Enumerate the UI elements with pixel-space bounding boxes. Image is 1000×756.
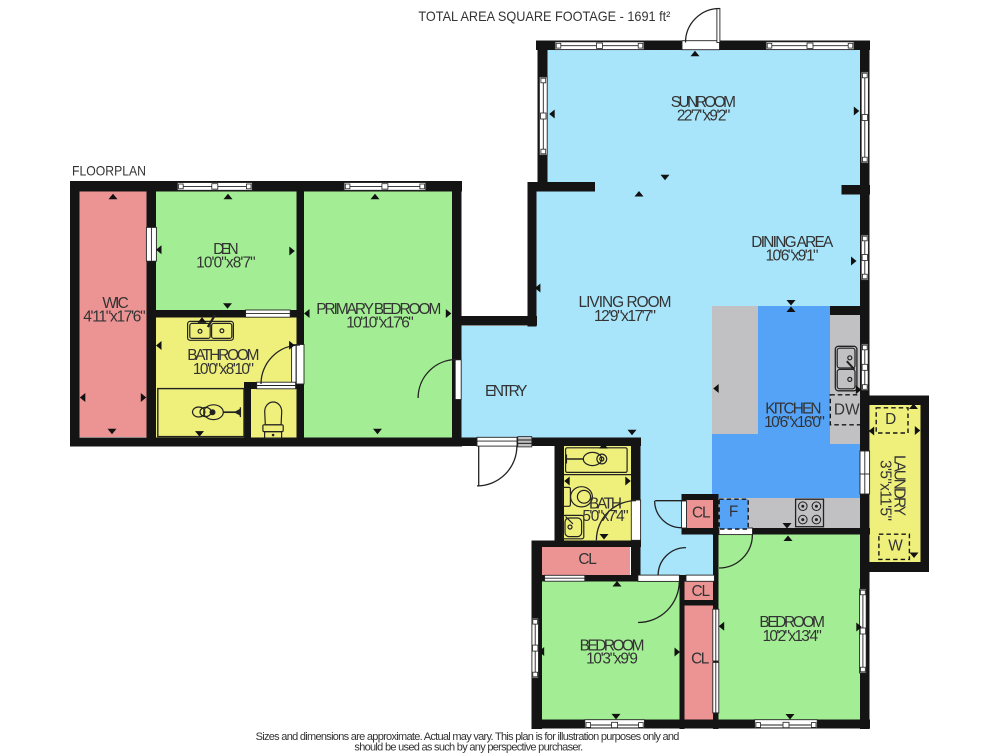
svg-text:22'7"x9'2": 22'7"x9'2" xyxy=(677,107,731,124)
svg-text:3'5"x11'5": 3'5"x11'5" xyxy=(876,460,893,521)
svg-text:10'6"x16'0": 10'6"x16'0" xyxy=(764,414,825,431)
svg-text:4'11"x17'6": 4'11"x17'6" xyxy=(83,308,145,325)
svg-text:CL: CL xyxy=(691,651,710,668)
svg-text:10'0"x8'7": 10'0"x8'7" xyxy=(196,254,256,271)
svg-text:F: F xyxy=(729,503,738,520)
svg-text:10'3"x9'9: 10'3"x9'9 xyxy=(586,651,638,668)
svg-text:W: W xyxy=(888,538,903,555)
svg-text:10'2"x13'4": 10'2"x13'4" xyxy=(763,628,822,645)
svg-text:10'10"x17'6": 10'10"x17'6" xyxy=(346,314,414,331)
svg-text:DW: DW xyxy=(834,401,860,418)
svg-text:10'6"x9'1": 10'6"x9'1" xyxy=(766,247,819,264)
svg-text:CL: CL xyxy=(578,551,597,568)
svg-text:D: D xyxy=(885,411,896,428)
svg-text:5'0"x7'4": 5'0"x7'4" xyxy=(582,508,628,525)
svg-text:10'0"x8'10": 10'0"x8'10" xyxy=(193,361,254,378)
svg-text:12'9"x17'7": 12'9"x17'7" xyxy=(594,308,656,325)
svg-text:CL: CL xyxy=(692,504,711,521)
svg-text:FLOORPLAN: FLOORPLAN xyxy=(72,163,146,179)
svg-text:should be used as such by any: should be used as such by any perspectiv… xyxy=(354,741,583,753)
svg-text:CL: CL xyxy=(692,583,711,600)
svg-text:ENTRY: ENTRY xyxy=(485,383,527,400)
svg-text:TOTAL AREA SQUARE FOOTAGE - 16: TOTAL AREA SQUARE FOOTAGE - 1691 ft² xyxy=(418,9,670,24)
